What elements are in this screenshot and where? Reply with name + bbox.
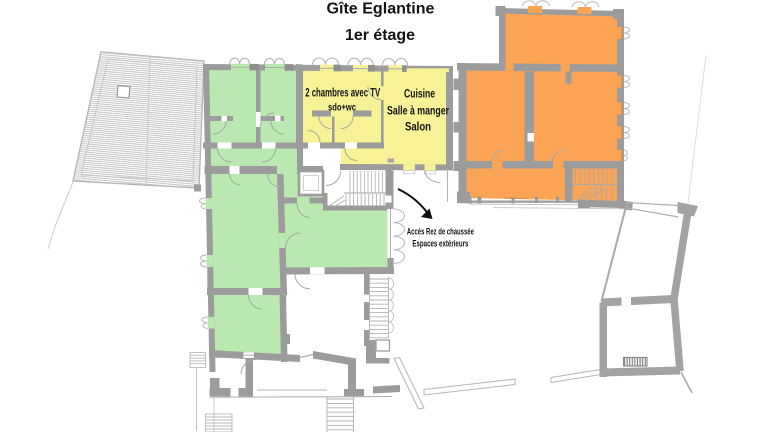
svg-text:Salle à manger: Salle à manger — [387, 106, 449, 118]
svg-text:Salon: Salon — [405, 122, 431, 134]
svg-text:1er étage: 1er étage — [345, 27, 415, 44]
svg-text:sdo+wc: sdo+wc — [328, 102, 356, 114]
svg-text:Gîte Eglantine: Gîte Eglantine — [327, 1, 435, 18]
svg-text:2 chambres avec TV: 2 chambres avec TV — [305, 86, 380, 100]
svg-text:Espaces extérieurs: Espaces extérieurs — [412, 239, 468, 249]
svg-text:Cuisine: Cuisine — [404, 89, 435, 101]
svg-text:Accès Rez de chaussée: Accès Rez de chaussée — [407, 227, 474, 237]
